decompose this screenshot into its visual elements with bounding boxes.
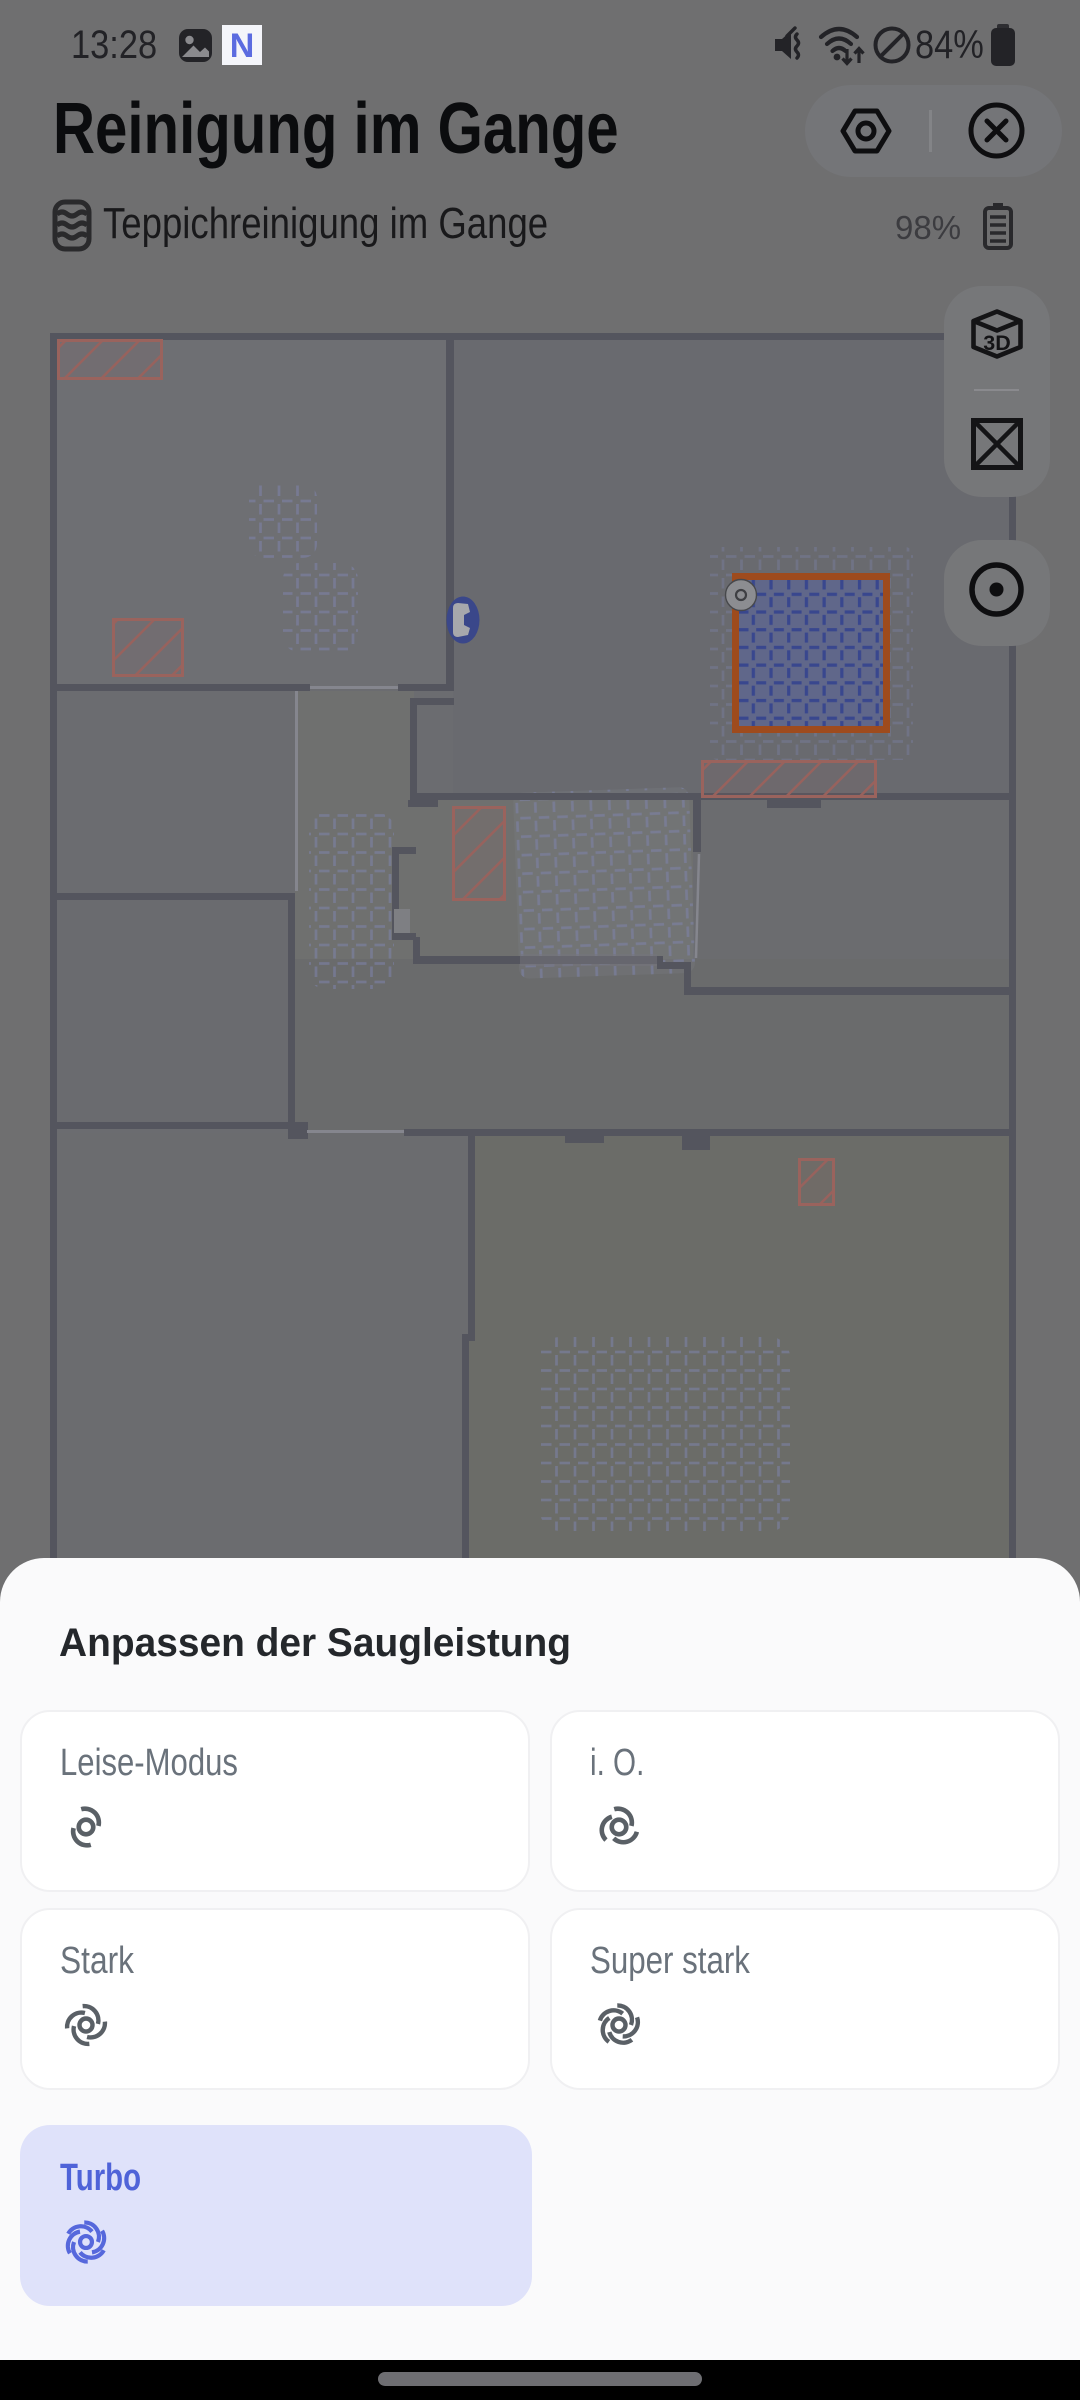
svg-text:3D: 3D — [983, 331, 1010, 355]
